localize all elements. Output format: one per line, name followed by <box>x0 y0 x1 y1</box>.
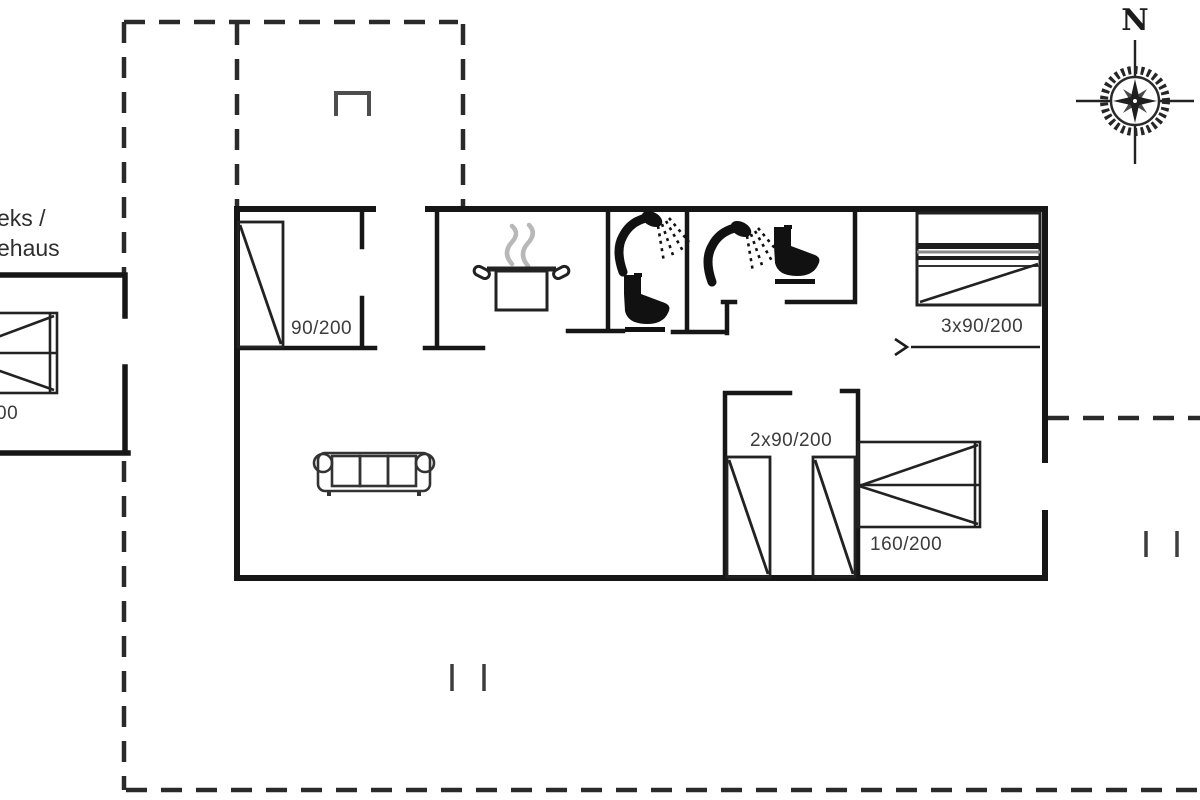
annex-name-line2: ehaus <box>0 235 60 261</box>
shower-icon <box>619 208 689 272</box>
floor-plan-page: 00 eks / ehaus 90/200 3x90/200 <box>0 0 1200 800</box>
compass-rose-icon: N <box>1076 3 1194 164</box>
annex-bed-size-label: 00 <box>0 403 18 424</box>
sofa-icon <box>314 453 434 496</box>
terrace-boundary-dashed <box>124 22 1200 790</box>
bedroom1-bed-size-label: 90/200 <box>291 318 352 339</box>
bunk-bed-size-label: 3x90/200 <box>941 316 1023 337</box>
twin-beds-icon <box>727 457 855 577</box>
double-bed-icon <box>858 442 980 527</box>
boundary-tick-icon <box>452 664 484 691</box>
sliding-door-arrow-icon <box>895 339 1040 355</box>
shower-icon <box>708 218 778 282</box>
single-bed-icon <box>238 222 283 347</box>
bunk-bed-icon <box>917 213 1040 305</box>
chimney-icon <box>336 93 369 116</box>
toilet-icon <box>774 225 819 284</box>
boundary-tick-icon <box>1146 531 1177 557</box>
north-label: N <box>1121 3 1148 38</box>
floor-plan-canvas: 00 eks / ehaus 90/200 3x90/200 <box>0 0 1200 800</box>
twin-beds-size-label: 2x90/200 <box>750 430 832 451</box>
annex-name-line1: eks / <box>0 205 46 231</box>
stove-pot-icon <box>473 225 571 310</box>
toilet-icon <box>624 273 669 332</box>
annex-walls <box>0 275 128 453</box>
interior-walls <box>237 209 858 578</box>
exterior-walls <box>237 209 1045 578</box>
annex-double-bed-icon <box>0 313 57 393</box>
double-bed-size-label: 160/200 <box>870 534 942 555</box>
annex-building: 00 eks / ehaus <box>0 205 128 453</box>
